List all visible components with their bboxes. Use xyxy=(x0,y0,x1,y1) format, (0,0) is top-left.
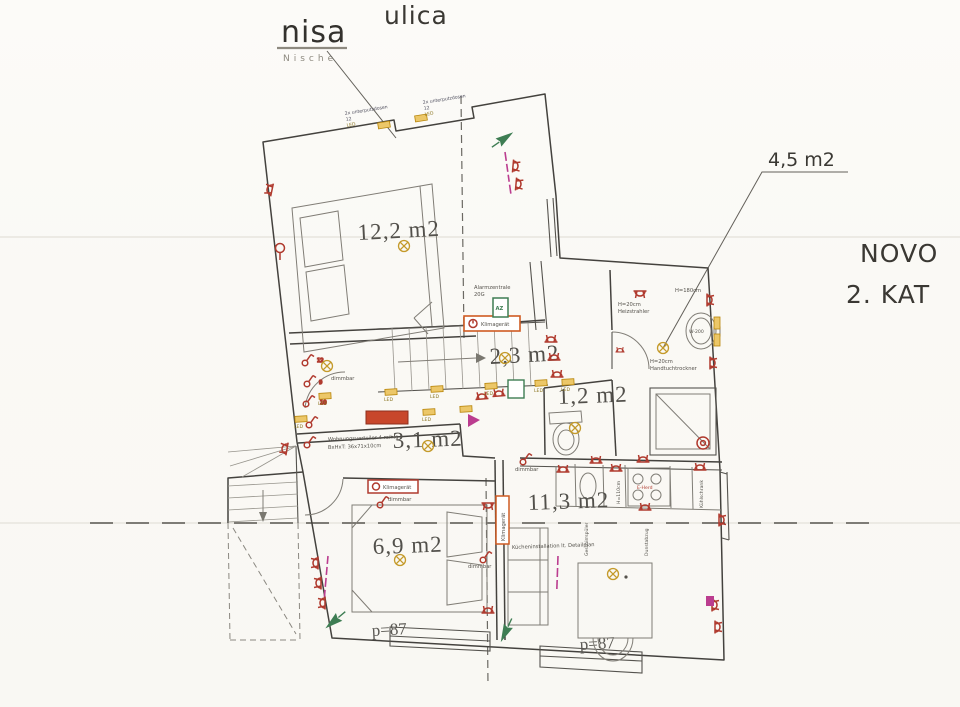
led-label: LED xyxy=(294,424,303,430)
lamp-icon xyxy=(570,423,581,434)
niche-note-qty: 12 xyxy=(345,116,352,123)
dimmbar-label: dimmbar xyxy=(388,497,412,503)
niche-note-text: 2x unterputzdosen xyxy=(422,93,466,106)
socket-icon xyxy=(314,577,321,590)
room-label-living: 11,3 m2 xyxy=(527,487,609,515)
socket-icon xyxy=(615,347,624,352)
switch-icon xyxy=(304,376,316,387)
led-strip-icon xyxy=(460,406,472,413)
alarm-label-2: 20G xyxy=(474,292,485,298)
feed-arrow-icon xyxy=(489,128,516,151)
klima-box-living: Klimagerät xyxy=(496,496,509,544)
led-strip-icon xyxy=(378,121,391,129)
feed-arrow-icon xyxy=(322,608,348,632)
led-label: LED xyxy=(422,417,431,423)
kitchen-note: Kücheninstallation lt. Detailplan xyxy=(512,542,595,551)
switch-icon xyxy=(306,417,318,428)
klima-box-bedroom2: Klimagerät dimmbar xyxy=(368,480,418,503)
socket-icon xyxy=(634,291,647,298)
label-nische: Nische xyxy=(283,54,337,64)
ceiling-lamps xyxy=(322,241,721,580)
led-strip-icon xyxy=(295,416,307,423)
led-label: LED xyxy=(318,401,327,407)
magenta-block-mark xyxy=(706,596,714,606)
h180-label: H=180cm xyxy=(675,288,701,294)
switch-icon xyxy=(302,355,314,366)
h110-label: H=110cm xyxy=(616,480,622,504)
dimmbar-label: dimmbar xyxy=(468,564,492,570)
led-points: LED LED LED LED LED LED LED LED LED xyxy=(294,379,574,430)
towel-height-label: H=20cm xyxy=(650,359,673,365)
switch-icon xyxy=(480,552,492,563)
sockets xyxy=(264,160,726,634)
verteiler-note-2: BxHxT: 36x71x10cm xyxy=(328,443,382,451)
fridge-label: Kühlschrank xyxy=(699,480,705,508)
socket-icon xyxy=(512,160,520,174)
room-label-bedroom2: 6,9 m2 xyxy=(372,532,443,559)
hood-label: Dunstabzug xyxy=(644,528,650,556)
socket-icon xyxy=(279,441,288,455)
heater-height-label: H=20cm xyxy=(618,302,641,308)
niche-note-qty: 12 xyxy=(423,105,430,112)
klima-label: Klimagerät xyxy=(481,322,509,328)
magenta-triangle-mark xyxy=(468,414,480,427)
led-label: LED xyxy=(484,391,493,397)
led-strip-icon xyxy=(562,379,574,386)
magenta-note-mark xyxy=(557,556,558,589)
shower xyxy=(650,388,716,455)
bed-1 xyxy=(292,184,444,352)
feed-arrow-icon xyxy=(496,616,516,644)
led-label: LED xyxy=(534,388,543,394)
room-label-wc: 1,2 m2 xyxy=(557,382,628,409)
bath-leader-line xyxy=(663,172,848,348)
stair-direction-arrow xyxy=(476,353,486,363)
title-block: nisa Nische ulica NOVO 2. KAT 4,5 m2 xyxy=(277,1,938,348)
niche-note-text: 2x unterputzdosen xyxy=(344,104,388,117)
socket-icon xyxy=(719,514,726,527)
led-label: LED xyxy=(384,397,393,403)
lamp-icon xyxy=(608,569,619,580)
furniture xyxy=(292,184,722,661)
socket-icon xyxy=(557,465,570,472)
led-strip-icon xyxy=(714,334,720,346)
wall-outlet-icon xyxy=(276,244,285,253)
socket-icon xyxy=(482,503,495,510)
led-strip-icon xyxy=(714,317,720,329)
led-strip-icon xyxy=(485,383,497,390)
socket-icon xyxy=(551,370,564,377)
klima-label: Klimagerät xyxy=(383,485,411,491)
az-label: AZ xyxy=(496,306,504,312)
parapet-label-left: p=87 xyxy=(371,619,408,640)
floorplan-canvas: nisa Nische ulica NOVO 2. KAT 4,5 m2 p=8… xyxy=(0,0,960,707)
led-strip-icon xyxy=(431,386,443,393)
klima-label: Klimagerät xyxy=(501,513,507,541)
switch-icon xyxy=(520,454,532,465)
room-label-bedroom1: 12,2 m2 xyxy=(357,216,441,245)
label-ulica: ulica xyxy=(384,1,448,30)
led-strip-icon xyxy=(319,393,331,400)
room-label-corridor: 3,1 m2 xyxy=(392,426,463,453)
floorplan-page: nisa Nische ulica NOVO 2. KAT 4,5 m2 p=8… xyxy=(0,0,960,707)
couch xyxy=(508,528,548,625)
switch-number: 9 xyxy=(319,380,322,386)
external-stair xyxy=(228,372,345,640)
sink-model-label: W-200 xyxy=(689,329,704,335)
led-label: LED xyxy=(430,394,439,400)
external-stair-below-cut xyxy=(228,523,300,640)
alarm-label-1: Alarmzentrale xyxy=(474,285,510,291)
socket-icon xyxy=(694,463,707,470)
alarm-unit: Alarmzentrale 20G AZ xyxy=(474,285,510,317)
led-strip-icon xyxy=(423,409,435,416)
parapet-label-right: p=87 xyxy=(579,633,616,654)
magenta-note-mark xyxy=(324,556,328,597)
green-device-box xyxy=(508,380,524,398)
label-novo: NOVO xyxy=(860,239,938,268)
dimmbar-label: dimmbar xyxy=(331,376,355,382)
lamp-icon xyxy=(322,361,333,372)
bathroom-annotations: H=20cm Heizstrahler H=180cm W-200 H=20cm… xyxy=(618,288,704,372)
niche-led-notes: 2x unterputzdosen 12 LED 2x unterputzdos… xyxy=(344,93,468,129)
verteiler-note-1: Wohnungsverteiler 4-reihig xyxy=(328,435,399,443)
towel-label: Handtuchtrockner xyxy=(650,366,698,372)
magenta-note-mark xyxy=(505,152,511,194)
label-bath-area: 4,5 m2 xyxy=(768,149,835,171)
socket-icon xyxy=(515,178,523,192)
socket-icon xyxy=(318,597,325,610)
stove-label: E-Herd xyxy=(637,485,653,491)
led-strip-icon xyxy=(385,389,397,396)
dimmbar-label: dimmbar xyxy=(515,467,539,473)
socket-icon xyxy=(492,389,505,397)
heater-label: Heizstrahler xyxy=(618,309,650,315)
label-kat: 2. KAT xyxy=(846,280,930,309)
label-nisa: nisa xyxy=(281,15,346,50)
socket-icon xyxy=(715,621,722,634)
dishwasher-label: Geschirrspüler xyxy=(584,522,590,556)
klima-box-hall: Klimagerät xyxy=(464,316,520,331)
led-strip-icon xyxy=(535,380,547,387)
lamp-icon xyxy=(658,343,669,354)
socket-icon xyxy=(311,557,318,570)
socket-icon xyxy=(482,606,495,613)
led-label: LED xyxy=(561,387,570,393)
